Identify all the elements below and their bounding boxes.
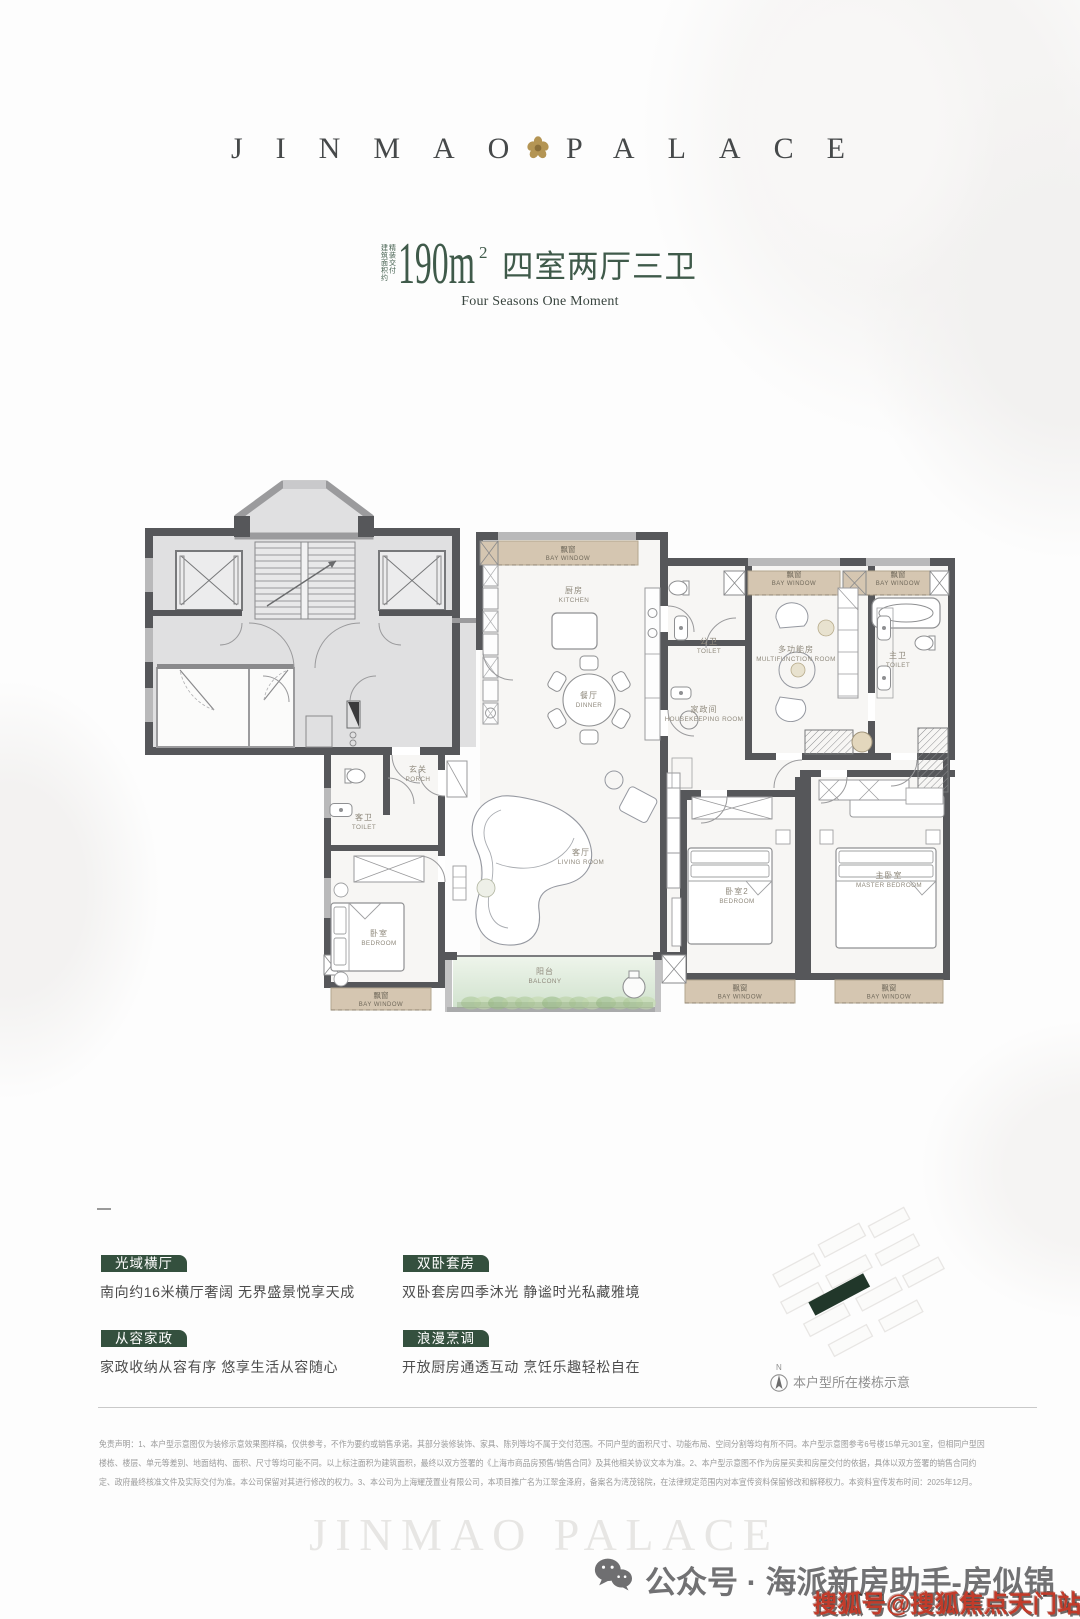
svg-text:MASTER BEDROOM: MASTER BEDROOM: [856, 882, 922, 889]
svg-text:建筑面积约: 建筑面积约: [381, 243, 388, 282]
svg-text:飘窗: 飘窗: [787, 569, 802, 579]
svg-text:飘窗: 飘窗: [374, 990, 389, 1000]
svg-text:BAY WINDOW: BAY WINDOW: [546, 556, 590, 562]
svg-text:公卫: 公卫: [700, 637, 718, 646]
svg-text:LIVING ROOM: LIVING ROOM: [558, 859, 604, 866]
svg-text:客卫: 客卫: [355, 812, 373, 822]
svg-text:Four Seasons One Moment: Four Seasons One Moment: [461, 294, 618, 309]
svg-text:N: N: [776, 1363, 782, 1372]
svg-text:卧室: 卧室: [370, 928, 388, 938]
svg-text:JINMAO: JINMAO: [231, 132, 542, 165]
svg-text:2: 2: [479, 243, 488, 262]
svg-text:BAY WINDOW: BAY WINDOW: [359, 1002, 403, 1008]
svg-text:飘窗: 飘窗: [882, 983, 897, 993]
svg-text:BEDROOM: BEDROOM: [719, 898, 754, 905]
svg-text:PORCH: PORCH: [406, 776, 431, 783]
svg-text:BAY WINDOW: BAY WINDOW: [772, 581, 816, 587]
svg-text:玄关: 玄关: [409, 764, 427, 774]
svg-text:BALCONY: BALCONY: [529, 978, 562, 985]
svg-text:KITCHEN: KITCHEN: [559, 597, 589, 604]
svg-text:BEDROOM: BEDROOM: [361, 940, 396, 947]
svg-text:MULTIFUNCTION ROOM: MULTIFUNCTION ROOM: [756, 656, 836, 663]
svg-text:客厅: 客厅: [572, 847, 590, 857]
svg-text:卧室2: 卧室2: [725, 886, 748, 896]
svg-text:主卫: 主卫: [889, 650, 907, 660]
svg-text:餐厅: 餐厅: [580, 691, 598, 700]
svg-text:HOUSEKEEPING ROOM: HOUSEKEEPING ROOM: [665, 716, 744, 723]
svg-text:四室两厅三卫: 四室两厅三卫: [502, 248, 697, 284]
svg-text:JINMAO PALACE: JINMAO PALACE: [309, 1509, 771, 1560]
svg-text:190m: 190m: [398, 230, 475, 296]
svg-text:主卧室: 主卧室: [876, 870, 903, 880]
svg-text:家政间: 家政间: [691, 704, 718, 714]
svg-text:BAY WINDOW: BAY WINDOW: [876, 581, 920, 587]
svg-text:飘窗: 飘窗: [733, 983, 748, 993]
svg-text:精装交付: 精装交付: [389, 243, 396, 275]
svg-text:TOILET: TOILET: [697, 648, 721, 655]
svg-text:阳台: 阳台: [536, 966, 554, 976]
svg-text:飘窗: 飘窗: [891, 569, 906, 579]
svg-text:TOILET: TOILET: [886, 662, 910, 669]
svg-text:TOILET: TOILET: [352, 824, 376, 831]
svg-text:DINNER: DINNER: [576, 702, 603, 709]
svg-text:厨房: 厨房: [565, 585, 583, 595]
svg-text:PALACE: PALACE: [566, 132, 878, 165]
svg-text:BAY WINDOW: BAY WINDOW: [718, 995, 762, 1001]
svg-text:本户型所在楼栋示意: 本户型所在楼栋示意: [793, 1375, 910, 1390]
svg-text:飘窗: 飘窗: [561, 544, 576, 554]
svg-text:BAY WINDOW: BAY WINDOW: [867, 995, 911, 1001]
svg-text:多功能房: 多功能房: [778, 644, 814, 654]
